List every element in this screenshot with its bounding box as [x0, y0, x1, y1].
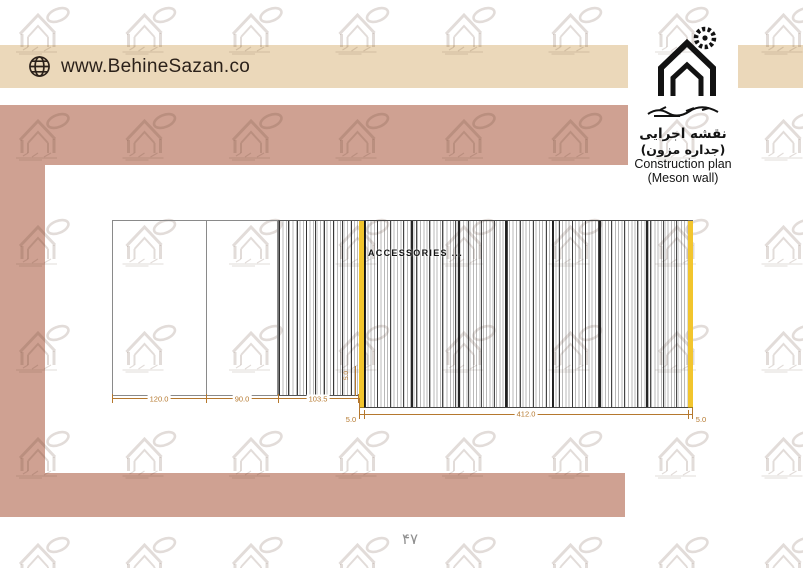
house-watermark-icon	[655, 429, 709, 478]
house-watermark-icon	[229, 535, 283, 568]
dim-label-main-panel: 412.0	[515, 410, 538, 419]
house-watermark-icon	[655, 535, 709, 568]
header-band-right	[738, 45, 803, 88]
globe-icon	[28, 55, 51, 78]
dim-extension-line	[359, 398, 360, 414]
dim-label-panel2: 90.0	[233, 395, 252, 404]
slat-panel-small	[278, 220, 359, 396]
dim-tick	[112, 394, 113, 403]
dim-tick	[206, 394, 207, 403]
dim-label-panel1: 120.0	[148, 395, 171, 404]
salmon-band-bottom	[0, 473, 625, 517]
signature-icon	[646, 105, 720, 118]
plan-title-en: Construction plan	[623, 157, 743, 171]
dim-label-right-strip: 5.0	[696, 415, 706, 424]
dim-extension-line	[692, 408, 693, 414]
dim-label-left-strip: 5.0	[346, 415, 356, 424]
salmon-band-left	[0, 105, 45, 517]
plan-subtitle-en: (Meson wall)	[623, 171, 743, 185]
house-watermark-icon	[16, 535, 70, 568]
house-watermark-icon	[123, 535, 177, 568]
yellow-strip-right	[688, 220, 693, 408]
house-watermark-icon	[549, 535, 603, 568]
house-watermark-icon	[549, 429, 603, 478]
gear-icon	[696, 29, 714, 47]
house-logo-icon	[637, 26, 729, 100]
wall-panel-1	[112, 220, 207, 396]
header-bar: www.BehineSazan.co	[28, 45, 250, 88]
catalog-page: www.BehineSazan.co نقشه اجرایی (جداره مز…	[0, 0, 803, 568]
house-watermark-icon	[229, 429, 283, 478]
house-watermark-icon	[762, 535, 803, 568]
house-watermark-icon	[762, 429, 803, 478]
accessories-annotation: ACCESSORIES ...	[368, 248, 463, 258]
dim-label-vertical: 5.0	[343, 371, 350, 380]
dim-tick	[364, 410, 365, 419]
house-watermark-icon	[762, 111, 803, 160]
brand-block: نقشه اجرایی (جداره مزون) Construction pl…	[623, 26, 743, 185]
wall-panel-2	[206, 220, 278, 396]
salmon-band-top	[0, 105, 628, 165]
dim-tick	[278, 394, 279, 403]
house-watermark-icon	[442, 429, 496, 478]
house-watermark-icon	[123, 429, 177, 478]
plan-title-fa: نقشه اجرایی	[623, 126, 743, 142]
house-watermark-icon	[762, 323, 803, 372]
house-watermark-icon	[336, 429, 390, 478]
house-watermark-icon	[442, 535, 496, 568]
page-number: ۴۷	[380, 530, 440, 548]
plan-subtitle-fa: (جداره مزون)	[623, 142, 743, 157]
dim-line-vertical	[355, 366, 356, 396]
dim-tick	[688, 410, 689, 419]
house-watermark-icon	[762, 217, 803, 266]
website-url: www.BehineSazan.co	[61, 56, 250, 78]
dim-label-panel3: 103.5	[307, 395, 330, 404]
